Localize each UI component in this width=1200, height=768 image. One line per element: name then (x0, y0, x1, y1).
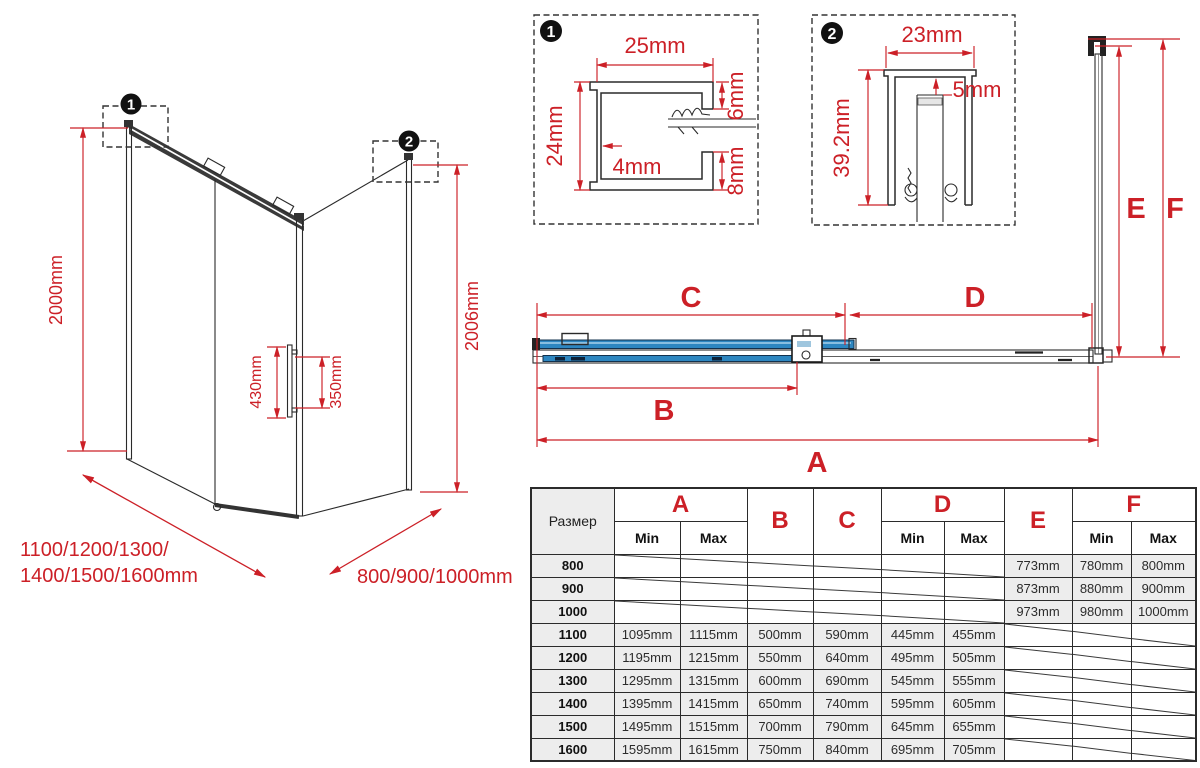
a-max-header: Max (680, 521, 747, 554)
table-row: 15001495mm1515mm700mm790mm645mm655mm (531, 715, 1196, 738)
height-left-dimension: 2000mm (46, 128, 128, 451)
table-row: 900873mm880mm900mm (531, 577, 1196, 600)
empty-cell (1131, 692, 1196, 715)
door-bracket-middle (792, 330, 822, 362)
row-size-label: 1200 (531, 646, 614, 669)
detail-2-callout: 2 23mm 5mm 39.2mm (812, 15, 1015, 225)
table-row: 11001095mm1115mm500mm590mm445mm455mm (531, 623, 1196, 646)
empty-cell (614, 600, 680, 623)
f-min-header: Min (1072, 521, 1131, 554)
corner-post-cap (294, 213, 304, 220)
empty-cell (1004, 692, 1072, 715)
door-bottom-guide (215, 505, 299, 517)
dim-e: E (1095, 46, 1146, 356)
callout-marker-1-label: 1 (127, 97, 135, 114)
dim-b: B (537, 362, 797, 427)
detail-1-wall-dimension: 4mm (603, 146, 661, 179)
front-bottom-edge (127, 459, 215, 504)
detail-2-width-label: 23mm (901, 22, 962, 47)
table-row: 13001295mm1315mm600mm690mm545mm555mm (531, 669, 1196, 692)
empty-cell (1131, 715, 1196, 738)
value-cell: 773mm (1004, 554, 1072, 577)
value-cell: 800mm (1131, 554, 1196, 577)
value-cell: 690mm (813, 669, 881, 692)
width-label-line2: 1400/1500/1600mm (20, 565, 198, 587)
empty-cell (1004, 738, 1072, 761)
value-cell: 700mm (747, 715, 813, 738)
value-cell: 973mm (1004, 600, 1072, 623)
row-size-label: 1500 (531, 715, 614, 738)
detail-2-gap-label: 5mm (953, 77, 1002, 102)
empty-cell (813, 577, 881, 600)
dim-e-label: E (1126, 193, 1145, 225)
table-row: 800773mm780mm800mm (531, 554, 1196, 577)
empty-cell (680, 600, 747, 623)
column-group-a: A (614, 488, 747, 521)
a-min-header: Min (614, 521, 680, 554)
empty-cell (1072, 646, 1131, 669)
detail-1-marker-label: 1 (547, 24, 556, 41)
table-row: 16001595mm1615mm750mm840mm695mm705mm (531, 738, 1196, 761)
value-cell: 445mm (881, 623, 944, 646)
empty-cell (1004, 623, 1072, 646)
value-cell: 555mm (944, 669, 1004, 692)
detail-2-gap-dimension: 5mm (936, 77, 1001, 102)
detail-1-wall-label: 4mm (613, 154, 662, 179)
detail-1-height-dimension: 24mm (542, 82, 590, 190)
value-cell: 873mm (1004, 577, 1072, 600)
height-left-label: 2000mm (46, 255, 66, 325)
empty-cell (944, 577, 1004, 600)
fixed-glass-mark-2 (571, 357, 585, 361)
value-cell: 780mm (1072, 554, 1131, 577)
empty-cell (813, 554, 881, 577)
f-max-header: Max (1131, 521, 1196, 554)
detail-1-width-dimension: 25mm (597, 33, 713, 82)
empty-cell (1131, 738, 1196, 761)
value-cell: 740mm (813, 692, 881, 715)
empty-cell (813, 600, 881, 623)
dim-d: D (850, 282, 1092, 348)
depth-dimension: 800/900/1000mm (330, 509, 513, 588)
empty-cell (747, 577, 813, 600)
value-cell: 1595mm (614, 738, 680, 761)
value-cell: 750mm (747, 738, 813, 761)
callout-marker-2-label: 2 (405, 134, 413, 151)
side-panel-bottom-edge (303, 489, 409, 516)
value-cell: 980mm (1072, 600, 1131, 623)
value-cell: 695mm (881, 738, 944, 761)
size-column-header: Размер (531, 488, 614, 554)
empty-cell (944, 600, 1004, 623)
column-group-f: F (1072, 488, 1196, 521)
value-cell: 640mm (813, 646, 881, 669)
empty-cell (1004, 715, 1072, 738)
empty-cell (881, 554, 944, 577)
column-group-c: C (813, 488, 881, 554)
corner-post (297, 219, 303, 516)
row-size-label: 1400 (531, 692, 614, 715)
value-cell: 900mm (1131, 577, 1196, 600)
value-cell: 655mm (944, 715, 1004, 738)
technical-drawing-page: { "colors":{"red":"#cc2027","ink":"#2a2a… (0, 0, 1200, 768)
value-cell: 880mm (1072, 577, 1131, 600)
value-cell: 590mm (813, 623, 881, 646)
empty-cell (680, 577, 747, 600)
glass-panel (917, 95, 943, 222)
empty-cell (944, 554, 1004, 577)
value-cell: 1315mm (680, 669, 747, 692)
value-cell: 1615mm (680, 738, 747, 761)
value-cell: 790mm (813, 715, 881, 738)
height-right-label: 2006mm (462, 281, 482, 351)
dim-c-label: C (681, 282, 702, 314)
value-cell: 550mm (747, 646, 813, 669)
value-cell: 1215mm (680, 646, 747, 669)
detail-1-top-gap-label: 6mm (723, 72, 748, 121)
dim-a: A (537, 366, 1098, 479)
empty-cell (747, 600, 813, 623)
value-cell: 650mm (747, 692, 813, 715)
left-post-cap (124, 120, 133, 127)
d-max-header: Max (944, 521, 1004, 554)
empty-cell (614, 554, 680, 577)
gasket-seal (672, 108, 710, 134)
dim-d-label: D (965, 282, 986, 314)
value-cell: 1395mm (614, 692, 680, 715)
empty-cell (1072, 623, 1131, 646)
empty-cell (881, 577, 944, 600)
value-cell: 1495mm (614, 715, 680, 738)
value-cell: 645mm (881, 715, 944, 738)
empty-cell (881, 600, 944, 623)
empty-cell (1131, 646, 1196, 669)
empty-cell (747, 554, 813, 577)
empty-cell (680, 554, 747, 577)
size-table: РазмерABCDEFMinMaxMinMaxMinMax 800773mm7… (530, 487, 1197, 762)
value-cell: 1195mm (614, 646, 680, 669)
detail-2-height-label: 39.2mm (829, 98, 854, 177)
width-label-line1: 1100/1200/1300/ (20, 539, 169, 561)
row-size-label: 900 (531, 577, 614, 600)
empty-cell (1072, 669, 1131, 692)
empty-cell (1072, 715, 1131, 738)
column-group-e: E (1004, 488, 1072, 554)
detail-1-bottom-gap-label: 8mm (723, 147, 748, 196)
table-row: 1000973mm980mm1000mm (531, 600, 1196, 623)
value-cell: 505mm (944, 646, 1004, 669)
row-size-label: 1300 (531, 669, 614, 692)
value-cell: 840mm (813, 738, 881, 761)
d-min-header: Min (881, 521, 944, 554)
roller-left (905, 184, 917, 196)
width-dimension: 1100/1200/1300/ 1400/1500/1600mm (20, 475, 265, 587)
door-handle (288, 345, 293, 417)
detail-2-marker-label: 2 (828, 26, 837, 43)
empty-cell (1004, 646, 1072, 669)
door-left-end (532, 338, 540, 350)
dim-b-label: B (654, 395, 675, 427)
value-cell: 600mm (747, 669, 813, 692)
value-cell: 1115mm (680, 623, 747, 646)
table-row: 14001395mm1415mm650mm740mm595mm605mm (531, 692, 1196, 715)
value-cell: 1095mm (614, 623, 680, 646)
value-cell: 1000mm (1131, 600, 1196, 623)
row-size-label: 800 (531, 554, 614, 577)
column-group-d: D (881, 488, 1004, 521)
dim-c: C (537, 282, 845, 447)
value-cell: 1415mm (680, 692, 747, 715)
dim-f-label: F (1166, 193, 1184, 225)
handle-height-label: 430mm (248, 355, 265, 408)
detail-1-bottom-gap-dimension: 8mm (713, 147, 748, 196)
detail-1-callout: 1 25mm 24mm 6mm 8mm 4mm (534, 15, 758, 224)
detail-2-height-dimension: 39.2mm (829, 70, 888, 205)
value-cell: 545mm (881, 669, 944, 692)
row-size-label: 1100 (531, 623, 614, 646)
detail-1-height-label: 24mm (542, 105, 567, 166)
fixed-glass-mark-1 (555, 357, 565, 361)
side-post-cap (404, 153, 413, 160)
empty-cell (1131, 623, 1196, 646)
value-cell: 595mm (881, 692, 944, 715)
corner-end-profile (1103, 350, 1112, 362)
detail-1-width-label: 25mm (624, 33, 685, 58)
seal-springs (905, 168, 957, 202)
side-panel-edge (407, 159, 412, 490)
isometric-view: 1 2 2000mm 2006mm 430mm 350mm (20, 94, 513, 589)
value-cell: 500mm (747, 623, 813, 646)
value-cell: 455mm (944, 623, 1004, 646)
value-cell: 495mm (881, 646, 944, 669)
handle-offset-label: 350mm (328, 355, 345, 408)
height-right-dimension: 2006mm (413, 165, 482, 492)
table-row: 12001195mm1215mm550mm640mm495mm505mm (531, 646, 1196, 669)
detail-1-top-gap-dimension: 6mm (713, 72, 748, 121)
column-group-b: B (747, 488, 813, 554)
empty-cell (1072, 738, 1131, 761)
handle-height-dimension: 430mm (248, 347, 286, 418)
value-cell: 605mm (944, 692, 1004, 715)
empty-cell (1131, 669, 1196, 692)
empty-cell (1004, 669, 1072, 692)
empty-cell (614, 577, 680, 600)
left-wall-profile (127, 127, 132, 459)
value-cell: 705mm (944, 738, 1004, 761)
row-size-label: 1000 (531, 600, 614, 623)
depth-label: 800/900/1000mm (357, 566, 513, 588)
value-cell: 1295mm (614, 669, 680, 692)
roller-right (945, 184, 957, 196)
plan-view: C D B A E F (532, 36, 1184, 479)
value-cell: 1515mm (680, 715, 747, 738)
detail-2-width-dimension: 23mm (886, 22, 974, 68)
fixed-glass-mark-3 (712, 357, 722, 361)
side-panel-top-edge (303, 160, 408, 221)
dim-a-label: A (807, 447, 828, 479)
glass-clamp (918, 98, 942, 105)
empty-cell (1072, 692, 1131, 715)
row-size-label: 1600 (531, 738, 614, 761)
